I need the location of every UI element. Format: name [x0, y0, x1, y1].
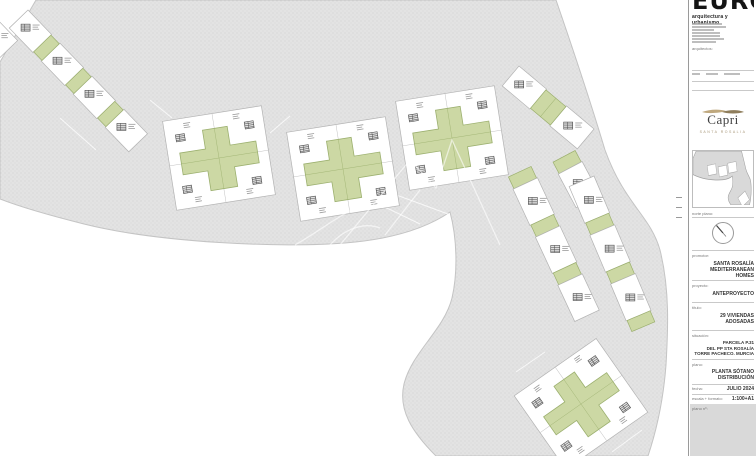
- escala-label: escala + formato:: [692, 396, 723, 401]
- key-map: [692, 150, 754, 208]
- fecha-value: JULIO 2024: [727, 386, 754, 392]
- architect-logo: EURO: [692, 0, 754, 13]
- title-block: EURO arquitectura y urbanismo arquitecto…: [688, 0, 756, 456]
- titulo-label: título:: [692, 305, 754, 310]
- promotor-value: SANTA ROSALÍA MEDITERRANEAN HOMES: [692, 261, 754, 279]
- escala-value: 1:100+A1: [732, 396, 754, 402]
- plano-label: plano:: [692, 362, 754, 367]
- situacion-value: PARCELA P.31 DEL PP STA ROSALÍA TORRE PA…: [692, 340, 754, 357]
- plano-value: PLANTA SÓTANO DISTRIBUCIÓN: [692, 369, 754, 381]
- proyecto-label: proyecto:: [692, 283, 754, 288]
- fecha-row: fecha: JULIO 2024: [692, 386, 754, 392]
- quad-cluster-2: [287, 117, 400, 222]
- brand-subtitle: SANTA ROSALIA: [692, 130, 754, 134]
- architect-address: [692, 23, 754, 35]
- plano-number-box: plano nº:: [690, 404, 756, 456]
- margin-ticks: [676, 197, 682, 218]
- north-compass-icon: [692, 220, 754, 251]
- situacion-label: situación:: [692, 333, 754, 338]
- quad-cluster-1: [163, 106, 276, 211]
- titulo-value: 29 VIVIENDAS ADOSADAS: [692, 313, 754, 325]
- quad-cluster-3: [396, 86, 509, 191]
- revision-table-header: [692, 73, 754, 76]
- plano-num-label: plano nº:: [692, 406, 708, 411]
- north-label: norte plano:: [692, 211, 754, 216]
- escala-row: escala + formato: 1:100+A1: [692, 396, 754, 402]
- architects-label: arquitectos:: [692, 46, 754, 51]
- proyecto-value: ANTEPROYECTO: [692, 291, 754, 297]
- brand-name: Capri: [692, 112, 754, 128]
- promotor-label: promotor:: [692, 253, 754, 258]
- site-plan: .u{fill:#fff;stroke:#b3b3b3;stroke-width…: [0, 0, 688, 456]
- architect-contact: [692, 35, 754, 44]
- drawing-sheet: .u{fill:#fff;stroke:#b3b3b3;stroke-width…: [0, 0, 756, 456]
- fecha-label: fecha:: [692, 386, 703, 391]
